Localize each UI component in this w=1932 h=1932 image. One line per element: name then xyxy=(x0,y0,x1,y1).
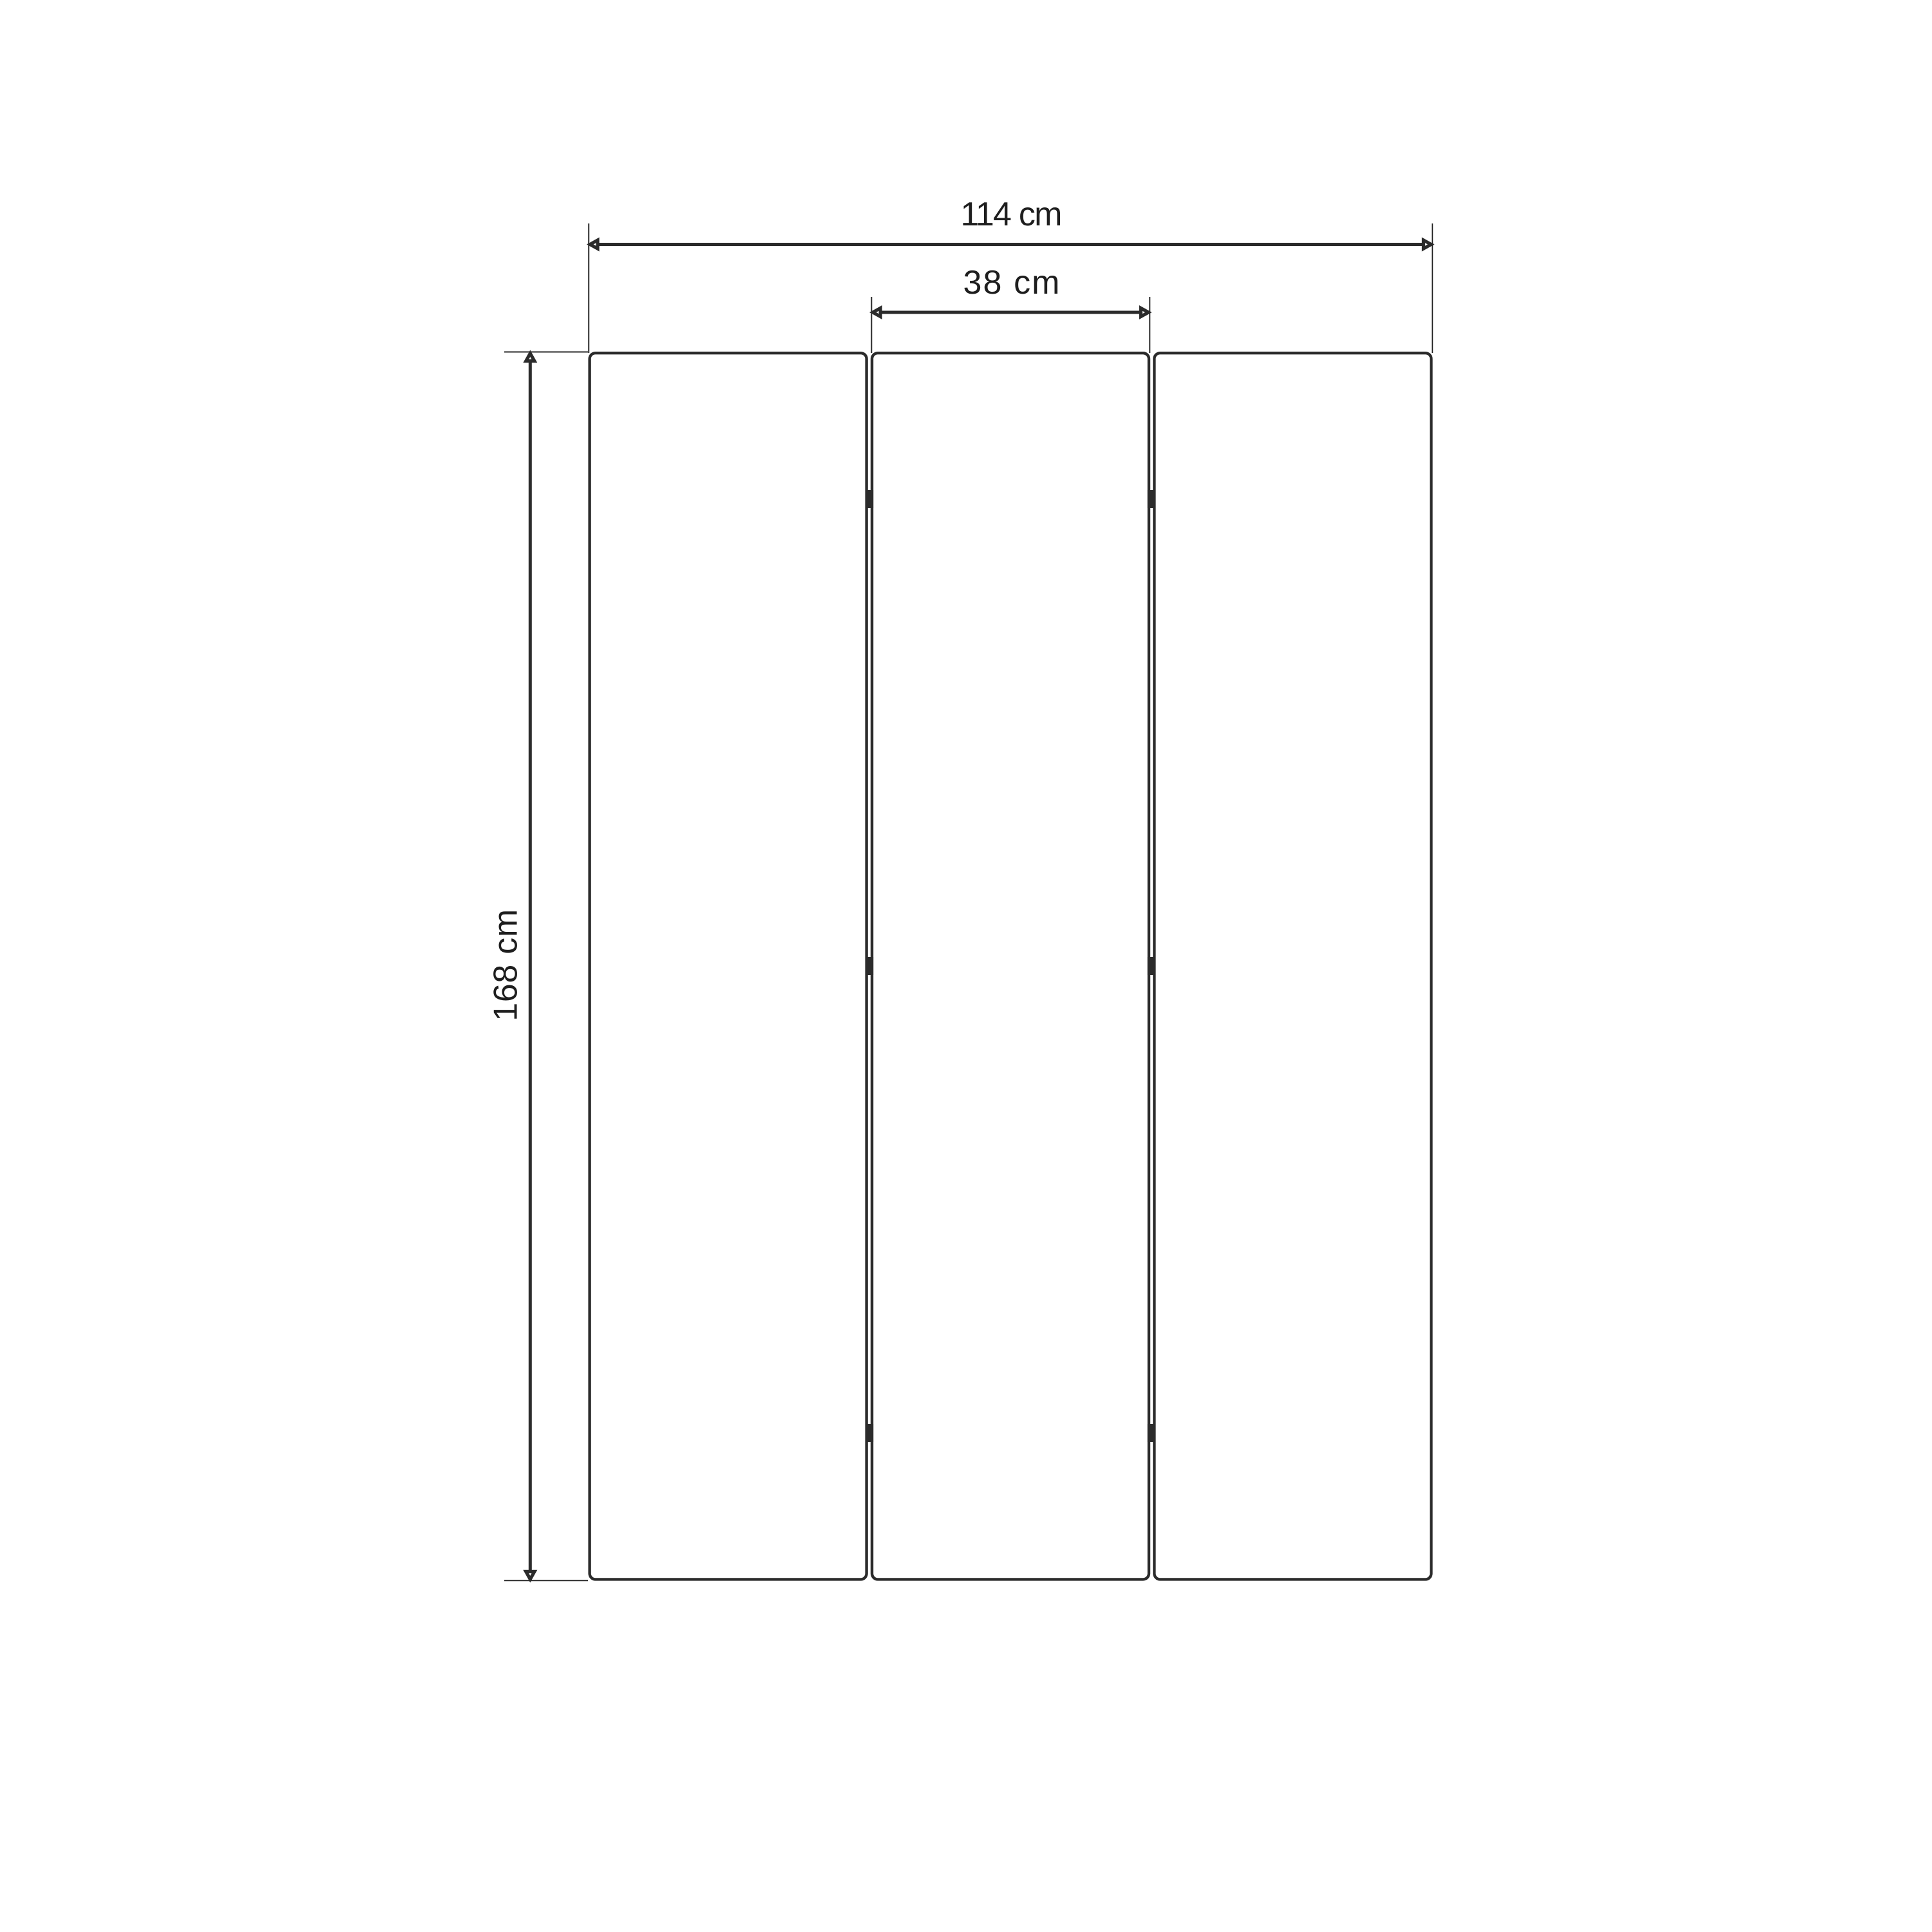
svg-text:168 cm: 168 cm xyxy=(487,909,524,1021)
svg-text:114 cm: 114 cm xyxy=(961,196,1063,233)
svg-text:38 cm: 38 cm xyxy=(963,264,1060,301)
